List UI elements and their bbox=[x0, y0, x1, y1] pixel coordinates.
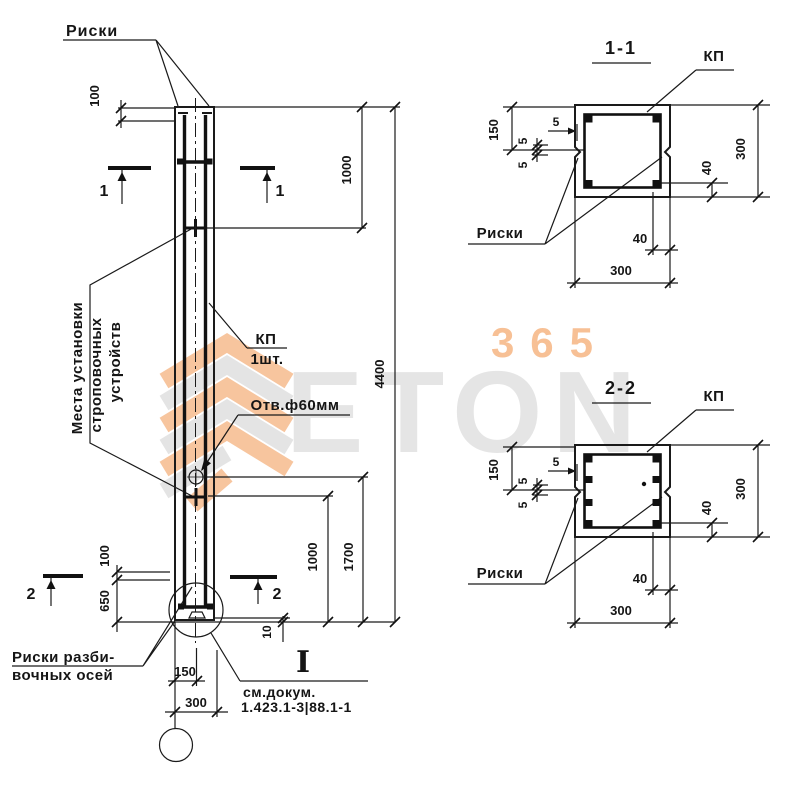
tie-end-dot bbox=[207, 159, 213, 165]
rebar-dot bbox=[586, 520, 593, 527]
axes-riski-label-line2: вочных осей bbox=[12, 667, 113, 684]
axes-riski-label-line1: Риски разби- bbox=[12, 649, 115, 666]
rebar-dot bbox=[586, 456, 593, 463]
riski-label: Риски bbox=[477, 565, 524, 582]
riski-top-label: Риски bbox=[66, 23, 118, 40]
dim-10: 10 bbox=[260, 625, 274, 639]
rebar-dot bbox=[653, 180, 660, 187]
dim-650: 650 bbox=[97, 590, 112, 612]
rebar-dot bbox=[653, 456, 660, 463]
dim-4400-overall: 4400 bbox=[372, 360, 387, 389]
rebar-dot bbox=[653, 476, 660, 483]
rebar-dots bbox=[586, 116, 660, 188]
rebar-dot bbox=[586, 180, 593, 187]
dim-150-axis: 150 bbox=[174, 664, 196, 679]
rebar-dot bbox=[653, 116, 660, 123]
axis-bubble bbox=[160, 729, 193, 762]
tie-end-dot bbox=[207, 604, 213, 610]
dim-300: 300 bbox=[733, 138, 748, 160]
flag-bar bbox=[108, 166, 151, 170]
dim-300-width: 300 bbox=[185, 695, 207, 710]
kp-quantity: 1шт. bbox=[250, 351, 283, 368]
dim-150: 150 bbox=[486, 119, 501, 141]
base-centering-pad bbox=[189, 612, 205, 618]
section-flag-2-right: 2 bbox=[230, 575, 282, 604]
drawing-sheet: ETON 365 bbox=[0, 0, 800, 800]
section-number: 1 bbox=[276, 183, 285, 200]
dim-100-top: 100 bbox=[87, 85, 102, 107]
section-number: 2 bbox=[27, 586, 36, 603]
center-mark-dot bbox=[642, 482, 646, 486]
dim-1000-top: 1000 bbox=[339, 156, 354, 185]
dim-5: 5 bbox=[516, 501, 530, 508]
section-number: 1 bbox=[100, 183, 109, 200]
blueprint-canvas: ETON 365 bbox=[0, 0, 800, 800]
section-flag-1-left: 1 bbox=[100, 166, 151, 204]
dim-5: 5 bbox=[516, 161, 530, 168]
flag-arrow-icon bbox=[254, 581, 263, 590]
section-number: 2 bbox=[273, 586, 282, 603]
dim-300-bottom: 300 bbox=[610, 603, 632, 618]
rebar-dot bbox=[586, 116, 593, 123]
dim-5-top: 5 bbox=[553, 115, 560, 129]
dim-5-top: 5 bbox=[553, 455, 560, 469]
strop-label-line1: Места установки bbox=[69, 302, 86, 435]
dim-5: 5 bbox=[516, 137, 530, 144]
dim-1700: 1700 bbox=[341, 543, 356, 572]
dim-5: 5 bbox=[516, 477, 530, 484]
doc-reference-line2: 1.423.1-3|88.1-1 bbox=[241, 699, 352, 715]
flag-arrow-icon bbox=[263, 172, 272, 181]
section-flag-2-left: 2 bbox=[27, 574, 83, 606]
hole-label: Отв.ф60мм bbox=[251, 397, 340, 414]
doc-reference-line1: см.докум. bbox=[243, 684, 316, 700]
rebar-dot bbox=[653, 499, 660, 506]
tie-end-dot bbox=[178, 604, 184, 610]
flag-arrow-icon bbox=[118, 172, 127, 181]
dim-300-bottom: 300 bbox=[610, 263, 632, 278]
section-title: 2-2 bbox=[605, 378, 637, 398]
watermark-number-text: 365 bbox=[491, 319, 609, 366]
kp-label: КП bbox=[256, 331, 277, 348]
dim-1000-bottom: 1000 bbox=[305, 543, 320, 572]
dim-ticks bbox=[507, 100, 763, 288]
rebar-dot bbox=[653, 520, 660, 527]
strop-label-line3: устройств bbox=[107, 322, 124, 403]
dim-40-bottom: 40 bbox=[633, 571, 647, 586]
section-flag-1-right: 1 bbox=[240, 166, 285, 203]
kp-label: КП bbox=[704, 388, 725, 405]
rebar-dot bbox=[586, 499, 593, 506]
dim-40-bottom: 40 bbox=[633, 231, 647, 246]
detail-mark-roman-I: I bbox=[296, 645, 310, 680]
flag-arrow-icon bbox=[47, 580, 56, 589]
dim-100-bottom: 100 bbox=[97, 545, 112, 567]
rebar-dot bbox=[586, 476, 593, 483]
section-title: 1-1 bbox=[605, 38, 637, 58]
section-view-1-1: 1-1 КП 150 5 5 5 40 300 40 300 Риски bbox=[468, 38, 770, 288]
strop-label-line2: строповочных bbox=[88, 317, 105, 432]
flag-bar bbox=[43, 574, 83, 578]
dim-40: 40 bbox=[699, 501, 714, 515]
stirrup bbox=[585, 115, 661, 188]
dim-40: 40 bbox=[699, 161, 714, 175]
dim-150: 150 bbox=[486, 459, 501, 481]
tie-end-dot bbox=[177, 159, 183, 165]
dim-300: 300 bbox=[733, 478, 748, 500]
riski-label: Риски bbox=[477, 225, 524, 242]
flag-bar bbox=[240, 166, 275, 170]
kp-label: КП bbox=[704, 48, 725, 65]
flag-bar bbox=[230, 575, 277, 579]
